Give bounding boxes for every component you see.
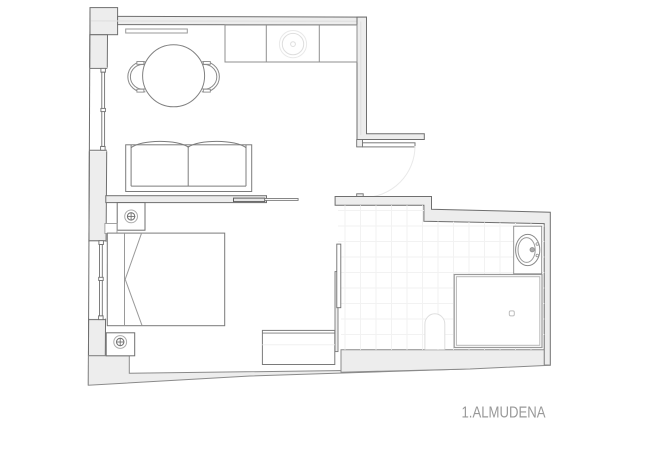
svg-text:1.ALMUDENA: 1.ALMUDENA bbox=[462, 404, 547, 421]
